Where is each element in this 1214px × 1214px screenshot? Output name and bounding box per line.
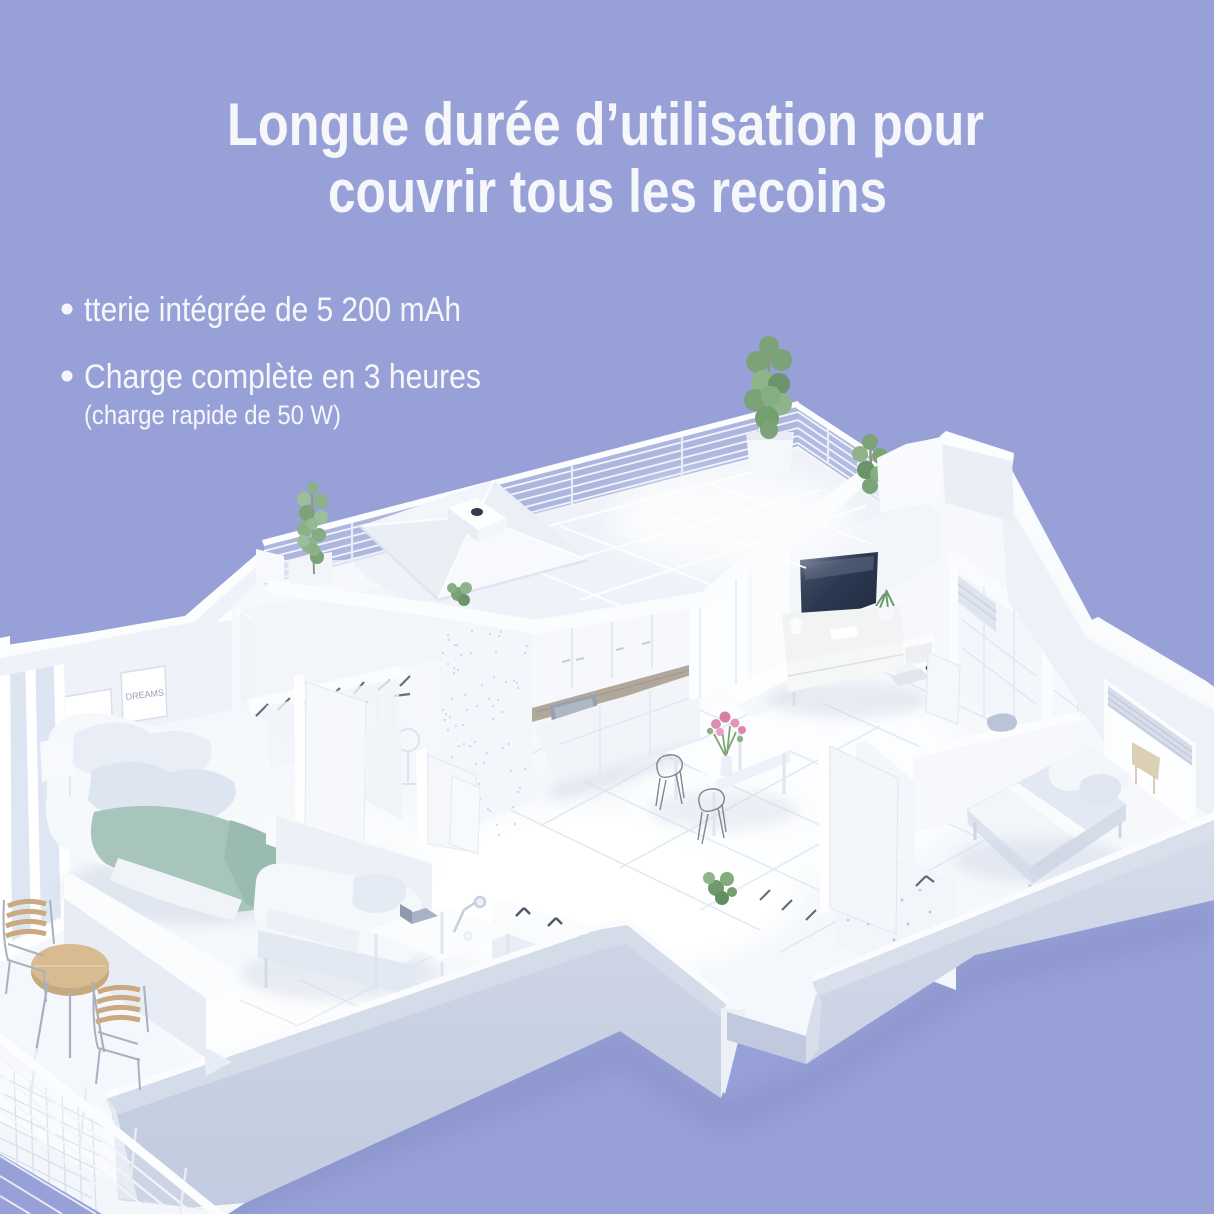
svg-text:tterie intégrée de 5 200 mAh: tterie intégrée de 5 200 mAh [84, 291, 461, 329]
svg-text:Longue durée d’utilisation pou: Longue durée d’utilisation pour [227, 91, 984, 158]
svg-text:couvrir tous les recoins: couvrir tous les recoins [328, 158, 887, 225]
svg-text:Charge complète en 3 heures: Charge complète en 3 heures [84, 358, 481, 396]
svg-text:(charge rapide de 50 W): (charge rapide de 50 W) [84, 400, 341, 430]
